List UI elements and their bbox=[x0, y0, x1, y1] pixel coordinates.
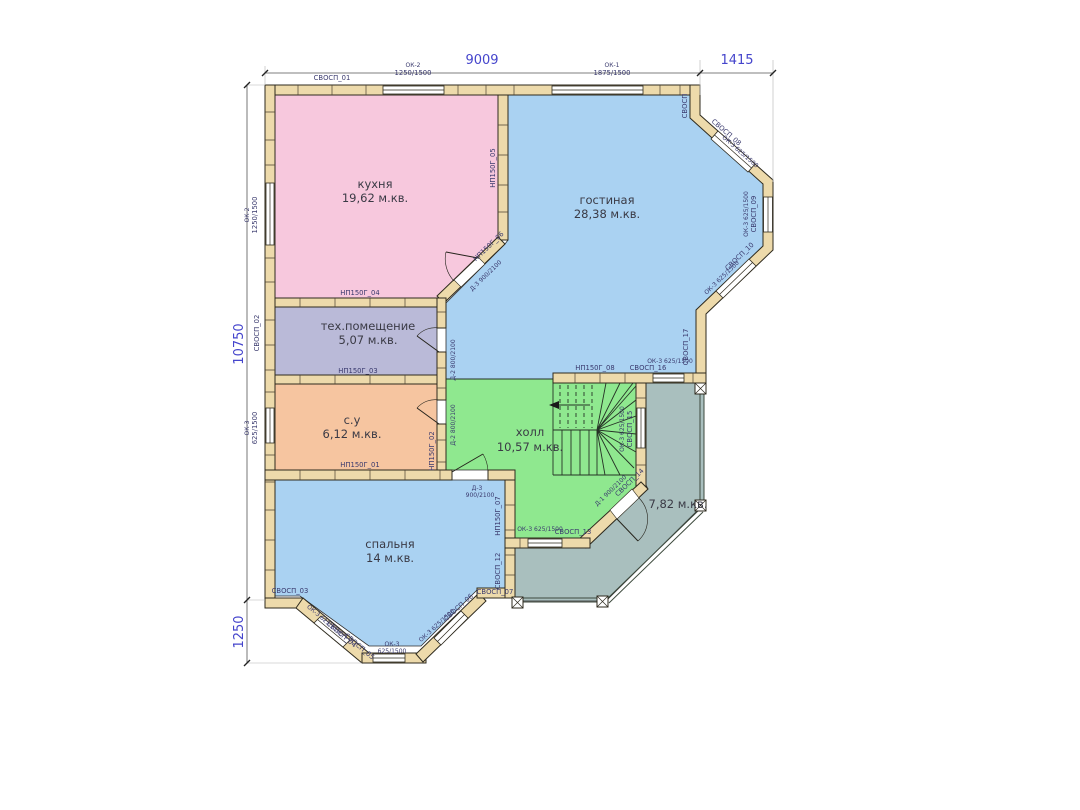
dim-left: 10750 bbox=[232, 323, 247, 364]
tech-name: тех.помещение bbox=[321, 319, 416, 333]
kitchen-area: 19,62 м.кв. bbox=[342, 191, 408, 205]
tag-d3-bedroom: Д-3 bbox=[472, 485, 483, 492]
tag-svosp07: СВОСП_07 bbox=[477, 588, 514, 596]
dim-top-right: 1415 bbox=[720, 53, 753, 68]
tag-np05: НП150Г_05 bbox=[489, 148, 497, 187]
tech-area: 5,07 м.кв. bbox=[339, 333, 398, 347]
tag-ok3-bay-bottom-size: 625/1500 bbox=[378, 648, 407, 655]
wall-left bbox=[265, 85, 275, 608]
bedroom-name: спальня bbox=[365, 537, 414, 551]
tag-ok3-left-size: 625/1500 bbox=[251, 412, 259, 445]
tag-ok2-top-size: 1250/1500 bbox=[395, 69, 432, 77]
tag-np07: НП150Г_07 bbox=[494, 496, 502, 535]
tag-d2-tech: Д-2 800/2100 bbox=[450, 339, 457, 381]
tag-ok3-svosp16: ОК-3 625/1500 bbox=[647, 358, 693, 365]
tag-ok3-bay-right: ОК-3 625/1500 bbox=[743, 191, 750, 237]
hall-name: холл bbox=[516, 425, 545, 439]
wc-name: с.у bbox=[344, 413, 361, 427]
hall-area: 10,57 м.кв. bbox=[497, 440, 563, 454]
wall-kitchen-right bbox=[498, 95, 508, 240]
tag-svosp03: СВОСП_03 bbox=[272, 587, 309, 595]
tag-np01: НП150Г_01 bbox=[340, 461, 379, 469]
wc-area: 6,12 м.кв. bbox=[323, 427, 382, 441]
wall-bedroom-top-left bbox=[265, 470, 452, 480]
tag-svosp02: СВОСП_02 bbox=[253, 315, 261, 352]
tag-svosp13: СВОСП_13 bbox=[555, 528, 592, 536]
tag-np08: НП150Г_08 bbox=[575, 364, 614, 372]
bedroom-area: 14 м.кв. bbox=[366, 551, 414, 565]
tag-svosp12: СВОСП_12 bbox=[494, 553, 502, 590]
tag-ok1-size: 1875/1500 bbox=[594, 69, 631, 77]
tag-svosp01: СВОСП_01 bbox=[314, 74, 351, 82]
tag-ok2-top: ОК-2 bbox=[406, 62, 421, 69]
tag-ok3-hall-terrace: ОК-3 625/1500 bbox=[619, 406, 626, 452]
dim-bottom-left: 1250 bbox=[232, 615, 247, 648]
tag-np04: НП150Г_04 bbox=[340, 289, 379, 297]
floor-plan-page: 9009 1415 10750 1250 кухня 19,62 м.кв. г… bbox=[0, 0, 1080, 810]
tag-d2-wc: Д-2 800/2100 bbox=[450, 404, 457, 446]
wall-tech-wc-right-mid bbox=[437, 352, 446, 400]
tag-svosp09: СВОСП_09 bbox=[750, 196, 758, 233]
living-area: 28,38 м.кв. bbox=[574, 207, 640, 221]
tag-ok3-bay-bottom: ОК-3 bbox=[385, 641, 400, 648]
wall-bedroom-top-right bbox=[488, 470, 515, 480]
tag-ok3-left: ОК-3 bbox=[244, 420, 251, 435]
kitchen-name: кухня bbox=[358, 177, 393, 191]
tag-np02: НП150Г_02 bbox=[428, 431, 436, 470]
living-name: гостиная bbox=[579, 193, 634, 207]
wall-tech-right-upper bbox=[437, 298, 446, 328]
floor-plan-drawing: 9009 1415 10750 1250 кухня 19,62 м.кв. г… bbox=[0, 0, 1080, 810]
tag-ok2-left: ОК-2 bbox=[244, 207, 251, 222]
tag-svosp-corner: СВОСП bbox=[681, 94, 689, 119]
terrace-area: 7,82 м.кв. bbox=[649, 497, 708, 511]
tag-np03: НП150Г_03 bbox=[338, 367, 377, 375]
tag-ok1: ОК-1 bbox=[605, 62, 620, 69]
tag-svosp15: СВОСП_15 bbox=[626, 411, 634, 448]
wall-tech-bottom bbox=[275, 375, 437, 384]
tag-d3-bedroom-size: 900/2100 bbox=[466, 492, 495, 499]
tag-ok2-left-size: 1250/1500 bbox=[251, 197, 259, 234]
tag-svosp16: СВОСП_16 bbox=[630, 364, 667, 372]
dim-top: 9009 bbox=[465, 53, 498, 68]
